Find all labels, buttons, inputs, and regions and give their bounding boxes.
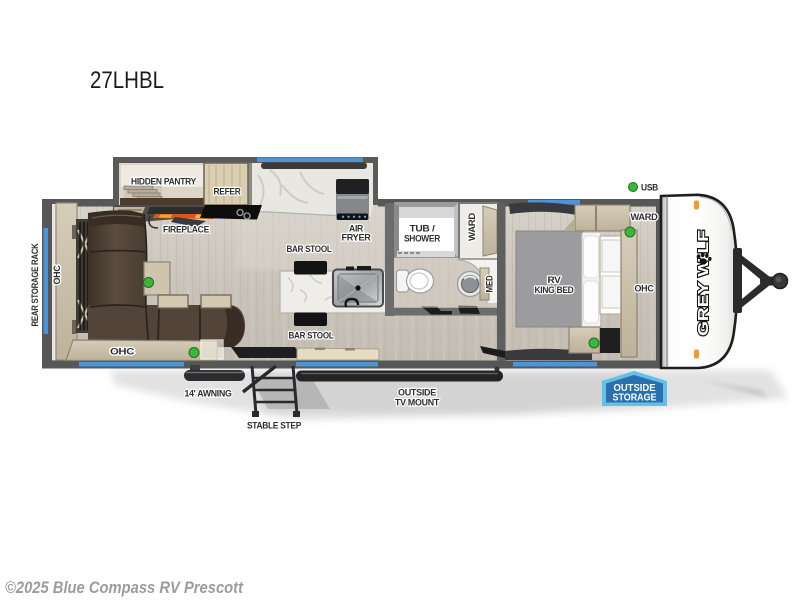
svg-text:WARD: WARD xyxy=(631,212,658,223)
svg-text:©2025 Blue Compass RV Prescott: ©2025 Blue Compass RV Prescott xyxy=(5,578,244,597)
svg-text:USB: USB xyxy=(641,183,658,194)
svg-text:BAR STOOL: BAR STOOL xyxy=(287,244,332,255)
svg-text:STORAGE: STORAGE xyxy=(613,392,657,403)
svg-text:OHC: OHC xyxy=(110,347,135,358)
svg-text:REFER: REFER xyxy=(214,187,241,198)
svg-text:WARD: WARD xyxy=(467,213,478,241)
svg-text:SHOWER: SHOWER xyxy=(404,234,440,245)
svg-text:BAR STOOL: BAR STOOL xyxy=(289,331,334,342)
svg-text:HIDDEN PANTRY: HIDDEN PANTRY xyxy=(131,177,197,188)
svg-text:TV MOUNT: TV MOUNT xyxy=(395,398,439,409)
svg-text:GREY W LF: GREY W LF xyxy=(695,230,712,336)
svg-text:OHC: OHC xyxy=(635,284,654,295)
svg-text:KING BED: KING BED xyxy=(535,285,574,296)
svg-text:FIREPLACE: FIREPLACE xyxy=(163,225,209,236)
svg-text:MED: MED xyxy=(485,275,496,292)
svg-text:14' AWNING: 14' AWNING xyxy=(185,389,232,400)
svg-text:27LHBL: 27LHBL xyxy=(90,67,164,94)
svg-text:FRYER: FRYER xyxy=(342,233,371,244)
svg-text:STABLE STEP: STABLE STEP xyxy=(247,421,302,432)
svg-text:REAR STORAGE RACK: REAR STORAGE RACK xyxy=(30,243,41,326)
svg-text:OHC: OHC xyxy=(52,265,63,284)
